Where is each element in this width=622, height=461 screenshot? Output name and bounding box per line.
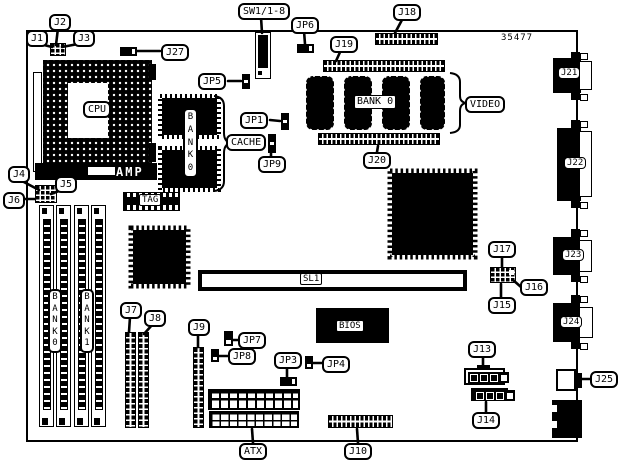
callout-j6: J6 [3, 192, 25, 209]
callout-j18: J18 [393, 4, 421, 21]
callout-j14: J14 [472, 412, 500, 429]
label-bios: BIOS [336, 320, 364, 332]
leader-jp1 [270, 120, 280, 121]
label-j23: J23 [562, 249, 584, 261]
callout-j4: J4 [8, 166, 30, 183]
callout-j19: J19 [330, 36, 358, 53]
callout-sw1: SW1/1-8 [238, 3, 290, 20]
callout-j10: J10 [344, 443, 372, 460]
video-brace [450, 73, 466, 133]
qfp-chip-small [133, 230, 186, 284]
callout-cache: CACHE [226, 134, 266, 151]
callout-j9: J9 [188, 319, 210, 336]
callout-jp7: JP7 [238, 332, 266, 349]
video-ram-chip-1 [306, 76, 334, 130]
label-j24: J24 [560, 316, 582, 328]
label-sl1: SL1 [300, 273, 322, 285]
part-number: 35477 [501, 33, 533, 43]
callout-jp9: JP9 [258, 156, 286, 173]
callout-jp3: JP3 [274, 352, 302, 369]
callout-j27: J27 [161, 44, 189, 61]
callout-j5: J5 [55, 176, 77, 193]
label-bank1-simm: B A N K 1 [80, 289, 94, 353]
callout-j2: J2 [49, 14, 71, 31]
callout-j8: J8 [144, 310, 166, 327]
callout-j1: J1 [26, 30, 48, 47]
callout-j13: J13 [468, 341, 496, 358]
ink-layer [0, 0, 622, 461]
callout-j3: J3 [73, 30, 95, 47]
label-bank0-video: BANK 0 [354, 95, 396, 109]
qfp-chip-large [392, 173, 473, 255]
label-bank0-simm: B A N K 0 [48, 289, 62, 353]
callout-j25: J25 [590, 371, 618, 388]
leader-j10 [357, 429, 358, 443]
callout-jp8: JP8 [228, 348, 256, 365]
callout-j15: J15 [488, 297, 516, 314]
callout-jp4: JP4 [322, 356, 350, 373]
callout-jp1: JP1 [240, 112, 268, 129]
motherboard-diagram: AMP [0, 0, 622, 461]
label-j22: J22 [564, 157, 586, 169]
callout-jp5: JP5 [198, 73, 226, 90]
leader-atx [252, 429, 253, 443]
callout-j20: J20 [363, 152, 391, 169]
label-cpu: CPU [83, 101, 111, 118]
callout-atx: ATX [239, 443, 267, 460]
callout-j17: J17 [488, 241, 516, 258]
callout-j7: J7 [120, 302, 142, 319]
callout-video: VIDEO [465, 96, 505, 113]
callout-j16: J16 [520, 279, 548, 296]
label-tag: TAG [139, 194, 161, 206]
label-bank0-cache: B A N K 0 [183, 108, 198, 178]
label-j21: J21 [558, 67, 580, 79]
video-ram-chip-4 [420, 76, 445, 130]
leader-j7 [129, 317, 130, 332]
callout-jp6: JP6 [291, 17, 319, 34]
